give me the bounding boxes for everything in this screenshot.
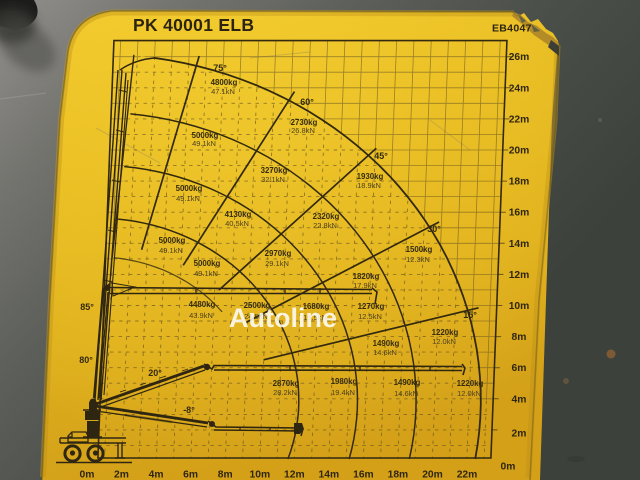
svg-text:49.1kN: 49.1kN (192, 139, 216, 148)
svg-text:3270kg: 3270kg (261, 166, 288, 175)
svg-text:4130kg: 4130kg (225, 210, 252, 219)
svg-text:75°: 75° (213, 63, 227, 73)
svg-text:12m: 12m (284, 470, 305, 480)
svg-text:6m: 6m (512, 363, 527, 374)
svg-text:12.0kN: 12.0kN (432, 337, 456, 346)
svg-text:2m: 2m (114, 470, 129, 480)
svg-text:12m: 12m (509, 270, 530, 281)
svg-text:PK 40001 ELB: PK 40001 ELB (133, 15, 254, 35)
svg-text:18.9kN: 18.9kN (357, 181, 381, 190)
svg-text:80°: 80° (79, 355, 93, 365)
svg-text:49.1kN: 49.1kN (176, 194, 200, 203)
svg-text:15°: 15° (463, 310, 477, 320)
svg-text:32.1kN: 32.1kN (261, 175, 285, 184)
svg-text:1490kg: 1490kg (373, 339, 400, 348)
svg-text:14m: 14m (509, 239, 530, 250)
svg-text:6m: 6m (183, 470, 198, 480)
svg-text:47.1kN: 47.1kN (211, 87, 235, 96)
svg-text:4m: 4m (149, 470, 164, 480)
svg-text:12.5kN: 12.5kN (358, 312, 382, 321)
svg-text:22.8kN: 22.8kN (313, 221, 337, 230)
svg-text:4m: 4m (512, 394, 527, 405)
svg-text:0m: 0m (501, 462, 516, 473)
svg-text:30°: 30° (427, 224, 441, 234)
svg-text:14.6kN: 14.6kN (394, 389, 418, 398)
svg-text:45°: 45° (374, 151, 388, 161)
svg-text:26.8kN: 26.8kN (291, 126, 315, 135)
svg-text:85°: 85° (80, 302, 94, 312)
svg-text:16m: 16m (353, 470, 374, 480)
svg-text:14.6kN: 14.6kN (373, 348, 397, 357)
svg-text:1930kg: 1930kg (357, 172, 384, 181)
svg-text:43.9kN: 43.9kN (189, 311, 213, 320)
svg-text:10m: 10m (249, 470, 270, 480)
svg-text:4480kg: 4480kg (189, 300, 216, 309)
svg-text:16m: 16m (509, 208, 530, 219)
svg-text:0m: 0m (80, 470, 95, 480)
svg-text:60°: 60° (300, 97, 314, 107)
svg-text:40.5kN: 40.5kN (225, 219, 249, 228)
svg-text:1270kg: 1270kg (358, 302, 385, 311)
svg-text:2970kg: 2970kg (265, 249, 292, 258)
svg-text:18m: 18m (509, 177, 530, 188)
svg-text:1980kg: 1980kg (331, 377, 358, 386)
svg-text:2870kg: 2870kg (273, 379, 300, 388)
svg-text:1820kg: 1820kg (353, 272, 380, 281)
svg-text:8m: 8m (218, 470, 233, 480)
svg-text:18m: 18m (388, 470, 409, 480)
svg-text:5000kg: 5000kg (159, 236, 186, 245)
svg-text:Autoline: Autoline (229, 303, 337, 333)
svg-text:12.3kN: 12.3kN (406, 255, 430, 264)
svg-text:49.1kN: 49.1kN (194, 269, 218, 278)
svg-text:49.1kN: 49.1kN (159, 246, 183, 255)
svg-text:26m: 26m (509, 52, 530, 63)
svg-text:22m: 22m (457, 470, 478, 480)
svg-text:22m: 22m (509, 114, 530, 125)
svg-text:1220kg: 1220kg (432, 328, 459, 337)
svg-text:28.2kN: 28.2kN (273, 388, 297, 397)
svg-text:5000kg: 5000kg (194, 259, 221, 268)
svg-text:2320kg: 2320kg (313, 212, 340, 221)
svg-text:20m: 20m (422, 470, 443, 480)
svg-text:-8°: -8° (183, 405, 195, 415)
svg-text:EB4047: EB4047 (492, 23, 532, 35)
svg-text:20m: 20m (509, 146, 530, 157)
svg-text:24m: 24m (509, 83, 530, 94)
svg-text:5000kg: 5000kg (176, 184, 203, 193)
svg-text:14m: 14m (318, 470, 339, 480)
svg-text:2m: 2m (512, 428, 527, 439)
svg-text:10m: 10m (509, 301, 530, 312)
svg-text:4800kg: 4800kg (211, 78, 238, 87)
svg-text:17.9kN: 17.9kN (353, 281, 377, 290)
svg-text:1220kg: 1220kg (457, 379, 484, 388)
svg-text:8m: 8m (512, 332, 527, 343)
svg-text:1490kg: 1490kg (394, 378, 421, 387)
svg-text:19.4kN: 19.4kN (331, 388, 355, 397)
svg-text:29.1kN: 29.1kN (265, 259, 289, 268)
svg-text:12.0kN: 12.0kN (457, 389, 481, 398)
svg-text:1500kg: 1500kg (406, 245, 433, 254)
svg-text:20°: 20° (148, 368, 162, 378)
